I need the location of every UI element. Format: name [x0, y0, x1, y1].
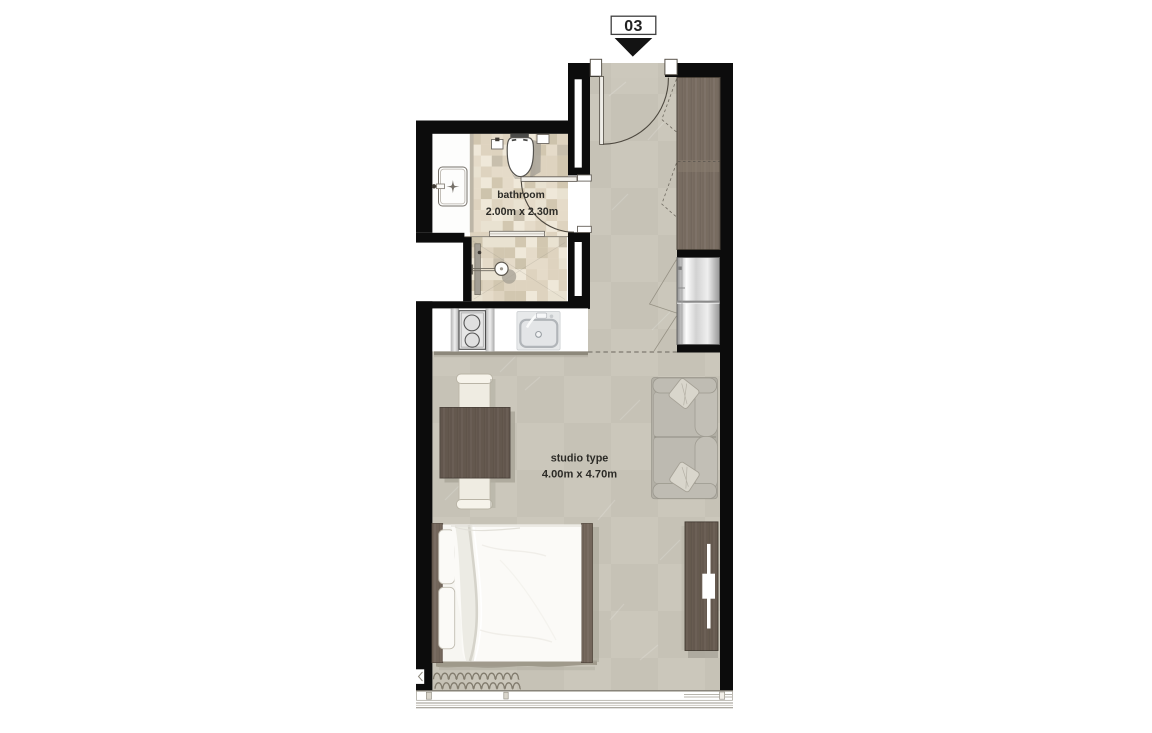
- svg-text:4.00m x 4.70m: 4.00m x 4.70m: [542, 469, 617, 481]
- svg-text:bathroom: bathroom: [497, 190, 544, 201]
- svg-text:03: 03: [624, 18, 642, 35]
- svg-text:studio type: studio type: [551, 453, 609, 465]
- svg-text:2.00m x 2.30m: 2.00m x 2.30m: [486, 206, 559, 218]
